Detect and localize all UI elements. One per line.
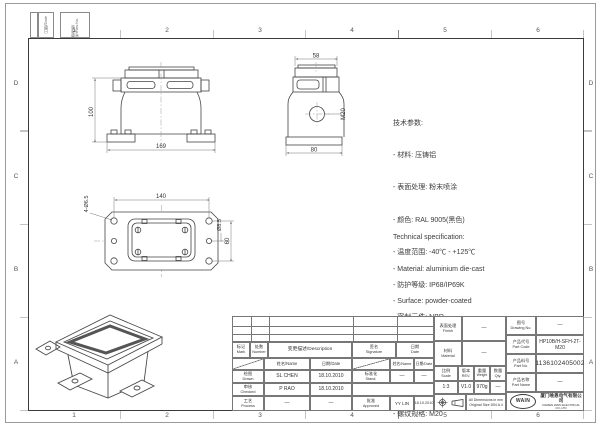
- revision-description-header: 变更描述/Description: [268, 342, 352, 358]
- checked-label: 审核 Checked: [232, 383, 264, 396]
- label-en: Part No.: [514, 364, 528, 368]
- label-en: Checked: [241, 390, 256, 394]
- size-note: Original Size DIN A 4: [469, 403, 503, 407]
- zone-number: 5: [435, 27, 455, 34]
- part-name-value: —: [536, 373, 584, 392]
- approved-label: 批准 Approved: [352, 396, 390, 411]
- approved-date: 18.10.2010: [414, 396, 434, 411]
- label-en: Stand.: [366, 377, 377, 381]
- name-subheader: 姓名/Name: [390, 358, 414, 370]
- zone-number: 4: [342, 27, 362, 34]
- zone-number: 3: [250, 412, 270, 419]
- zone-letter: C: [11, 173, 21, 180]
- rev-value: V1.0: [458, 381, 474, 394]
- top-mount-holes-dim: 4-Ø6.5: [84, 196, 90, 213]
- label-en: Finish: [443, 329, 453, 333]
- corner-strip-empty-box: [30, 12, 38, 38]
- name-subheader: 姓名/Name: [264, 358, 310, 370]
- process-label: 工艺 Process: [232, 396, 264, 411]
- rev-label: 版本 REV.: [458, 366, 474, 381]
- part-code-value: HP10B/H-SFH-2T-M20: [536, 335, 584, 354]
- part-no-value: 1136102405002: [536, 354, 584, 373]
- side-center-lines: [305, 62, 329, 126]
- revision-signature-header: 签名 Signature: [352, 342, 396, 358]
- spec-en-title: Technical specification:: [393, 233, 508, 244]
- label-en: Date: [411, 350, 419, 354]
- zone-number: 3: [250, 27, 270, 34]
- spec-en-line: - Material: aluminium die-cast: [393, 265, 508, 276]
- drawing-no-label: 图号 Drawing No.: [506, 316, 536, 335]
- zone-letter: D: [586, 80, 596, 87]
- standard-date: —: [414, 370, 434, 383]
- corner-strip-date-label: 日期/Date: [44, 16, 48, 34]
- title-block: 标记 Mark 处数 Number 变更描述/Description 签名 Si…: [232, 316, 584, 411]
- dimensions-note-cell: All Dimensions in mm Original Size DIN A…: [466, 394, 506, 411]
- weight-value: 970g: [474, 381, 490, 394]
- label-en: Signature: [366, 350, 382, 354]
- zone-number: 2: [157, 27, 177, 34]
- zone-ticks-top: [28, 30, 584, 38]
- spec-cn-title: 技术参数:: [393, 119, 475, 130]
- zone-number: 1: [64, 412, 84, 419]
- label-en: Mark: [237, 350, 245, 354]
- wain-logo: WAIN: [510, 394, 536, 409]
- zone-ticks-right: [584, 38, 592, 411]
- label-en: Part Code: [512, 345, 529, 349]
- zone-letter: A: [11, 359, 21, 366]
- checked-date: 18.10.2010: [310, 383, 352, 396]
- zone-ticks-left: [20, 38, 28, 411]
- part-no-label: 产品料号 Part No.: [506, 354, 536, 373]
- corner-strip-rev-box: 更改单号/Rev.No.: [60, 12, 90, 38]
- scale-label: 比例 Scale: [434, 366, 458, 381]
- revision-date-header: 日期 Date: [396, 342, 434, 358]
- material-value: —: [462, 341, 506, 366]
- finish-label: 表面处理 Finish: [434, 316, 462, 341]
- label-en: REV.: [462, 374, 471, 378]
- top-depth-dim: 60: [225, 237, 231, 244]
- company-name-en: XIAMEN WAIN ELECTRICAL CO.,LTD: [539, 404, 583, 411]
- top-entry-hole-dim: Ø8.5: [217, 219, 223, 231]
- label-en: Approved: [363, 404, 379, 408]
- zone-number: 6: [528, 27, 548, 34]
- first-angle-projection-icon: [437, 397, 448, 408]
- company-name-cn: 厦门唯恩电气有限公司: [539, 393, 583, 404]
- front-view: 100 169: [85, 50, 245, 160]
- zone-letter: D: [11, 80, 21, 87]
- label-en: Weight: [477, 374, 488, 378]
- side-view-geometry: [286, 65, 344, 145]
- label-en: Qty.: [495, 374, 502, 378]
- corner-strip-date-box: 日期/Date: [38, 12, 54, 38]
- qty-label: 数量 Qty.: [490, 366, 506, 381]
- empty-cell: [352, 383, 434, 396]
- process-name: —: [264, 396, 310, 411]
- label-en: Material: [441, 354, 455, 358]
- drawn-label: 绘图 Drawn: [232, 370, 264, 383]
- label-en: Part Name: [512, 383, 530, 387]
- revision-mark-header: 标记 Mark: [232, 342, 250, 358]
- front-width-dim: 169: [156, 144, 167, 150]
- part-code-label: 产品代号 Part Code: [506, 335, 536, 354]
- spec-cn-line: - 表面处理: 粉末喷涂: [393, 183, 475, 194]
- finish-value: —: [462, 316, 506, 341]
- top-view: 140 4-Ø6.5 Ø8.5 60: [82, 183, 242, 287]
- revision-number-header: 处数 Number: [250, 342, 268, 358]
- drawing-sheet: 1 2 3 4 5 6 1 2 3 4 5 6 D C B A D C B A …: [0, 0, 600, 424]
- side-top-width-dim: 58: [313, 54, 320, 60]
- material-label: 材料 Material: [434, 341, 462, 366]
- standard-name: —: [390, 370, 414, 383]
- weight-label: 重量 Weight: [474, 366, 490, 381]
- top-view-geometry: [105, 212, 218, 270]
- date-subheader: 日期/Date: [310, 358, 352, 370]
- zone-number: 2: [157, 412, 177, 419]
- diagonal-cell: [232, 358, 264, 370]
- side-thread-label: M20: [341, 108, 347, 120]
- scale-value: 1:3: [434, 381, 458, 394]
- approved-name: YY LIN: [390, 396, 414, 411]
- iso-geometry: [36, 315, 162, 398]
- process-date: —: [310, 396, 352, 411]
- label-en: Drawing No.: [511, 326, 532, 330]
- drawn-name: SL CHEN: [264, 370, 310, 383]
- drawing-no-value: —: [536, 316, 584, 335]
- date-subheader: 日期/Date: [414, 358, 434, 370]
- spec-en-line: - Surface: powder-coated: [393, 297, 508, 308]
- isometric-view: [28, 285, 173, 407]
- drawn-date: 18.10.2010: [310, 370, 352, 383]
- label-en: Scale: [441, 374, 451, 378]
- spec-cn-line: - 材料: 压铸铝: [393, 151, 475, 162]
- standard-label: 标准化 Stand.: [352, 370, 390, 383]
- projection-symbol-cell: [434, 394, 466, 411]
- company-names: 厦门唯恩电气有限公司 XIAMEN WAIN ELECTRICAL CO.,LT…: [539, 393, 583, 411]
- zone-letter: A: [586, 359, 596, 366]
- part-name-label: 产品名称 Part Name: [506, 373, 536, 392]
- label-en: Drawn: [243, 377, 254, 381]
- top-width-dim: 140: [156, 194, 167, 200]
- company-cell: WAIN 厦门唯恩电气有限公司 XIAMEN WAIN ELECTRICAL C…: [506, 392, 584, 411]
- side-view: 58 80 M20: [268, 50, 378, 162]
- qty-value: —: [490, 381, 506, 394]
- zone-letter: B: [586, 266, 596, 273]
- checked-name: P RAO: [264, 383, 310, 396]
- zone-letter: C: [586, 173, 596, 180]
- label-en: Process: [241, 404, 255, 408]
- label-en: Number: [252, 350, 266, 354]
- zone-letter: B: [11, 266, 21, 273]
- front-height-dim: 100: [89, 106, 95, 117]
- side-dimension-lines: [286, 56, 342, 156]
- revision-empty-rows: [232, 316, 434, 342]
- side-bottom-width-dim: 80: [311, 148, 318, 154]
- zone-number: 4: [342, 412, 362, 419]
- zone-number: 6: [528, 412, 548, 419]
- diagonal-cell: [352, 358, 390, 370]
- projection-cone-icon: [451, 399, 464, 407]
- corner-strip-rev-label: 更改单号/Rev.No.: [71, 13, 79, 37]
